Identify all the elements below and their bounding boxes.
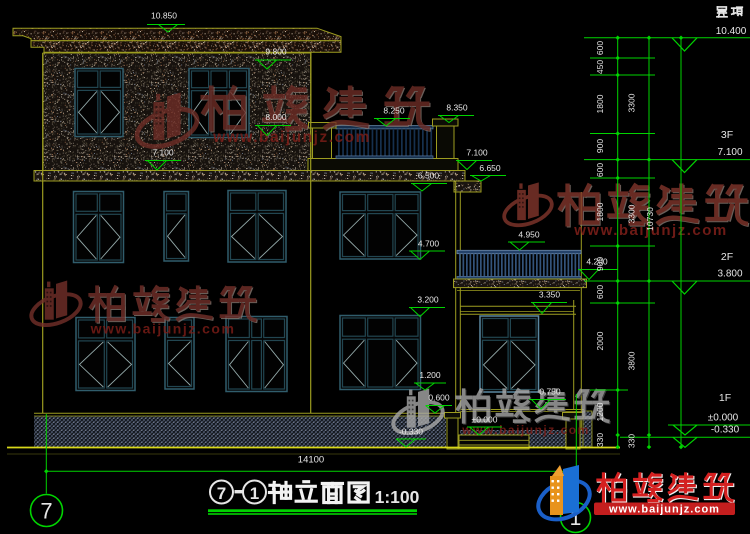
svg-text:9.800: 9.800 [265,47,287,57]
svg-text:7: 7 [40,499,52,524]
svg-text:1F: 1F [719,392,731,404]
svg-text:7: 7 [217,484,226,503]
svg-text:6.650: 6.650 [479,163,501,173]
svg-text:3.800: 3.800 [717,269,742,280]
svg-text:1200: 1200 [595,402,605,421]
svg-text:14100: 14100 [298,455,324,466]
svg-text:www.baijunjz.com: www.baijunjz.com [90,321,236,337]
svg-text:330: 330 [595,433,605,447]
svg-text:2F: 2F [721,251,733,263]
svg-text:-0.330: -0.330 [399,427,423,437]
svg-text:600: 600 [595,41,605,55]
svg-text:330: 330 [627,434,637,448]
svg-text:3F: 3F [721,129,733,141]
svg-text:3300: 3300 [627,93,637,112]
svg-text:1.200: 1.200 [419,370,441,380]
svg-text:-0.330: -0.330 [711,425,740,436]
svg-text:www.baijunjz.com: www.baijunjz.com [461,423,590,437]
svg-text:3800: 3800 [627,351,637,370]
svg-text:1: 1 [250,484,259,503]
svg-text:4.700: 4.700 [418,239,440,249]
svg-text:900: 900 [595,139,605,153]
svg-text:4.950: 4.950 [518,230,540,240]
svg-text:600: 600 [595,285,605,299]
svg-text:8.250: 8.250 [383,106,405,116]
svg-text:±0.000: ±0.000 [472,415,498,425]
svg-text:8.350: 8.350 [446,103,468,113]
svg-text:3.350: 3.350 [539,290,561,300]
svg-text:8.000: 8.000 [265,112,287,122]
svg-text:10.400: 10.400 [716,26,747,37]
svg-text:7.100: 7.100 [152,148,174,158]
svg-text:3.200: 3.200 [417,295,439,305]
svg-text:6.500: 6.500 [418,171,440,181]
svg-text:600: 600 [595,163,605,177]
svg-text:0.600: 0.600 [428,393,450,403]
svg-text:900: 900 [595,257,605,271]
svg-text:1:100: 1:100 [375,487,420,507]
svg-text:10.850: 10.850 [151,11,177,21]
svg-text:1800: 1800 [595,94,605,113]
svg-text:7.100: 7.100 [466,148,488,158]
svg-text:7.100: 7.100 [717,147,742,158]
svg-text:10730: 10730 [645,207,655,231]
svg-text:2000: 2000 [595,331,605,350]
svg-text:1800: 1800 [595,202,605,221]
svg-text:450: 450 [595,60,605,74]
svg-text:www.baijunjz.com: www.baijunjz.com [212,129,371,146]
svg-text:0.750: 0.750 [539,387,561,397]
svg-text:www.baijunjz.com: www.baijunjz.com [608,504,720,516]
svg-text:3300: 3300 [627,204,637,223]
svg-text:±0.000: ±0.000 [708,413,739,424]
